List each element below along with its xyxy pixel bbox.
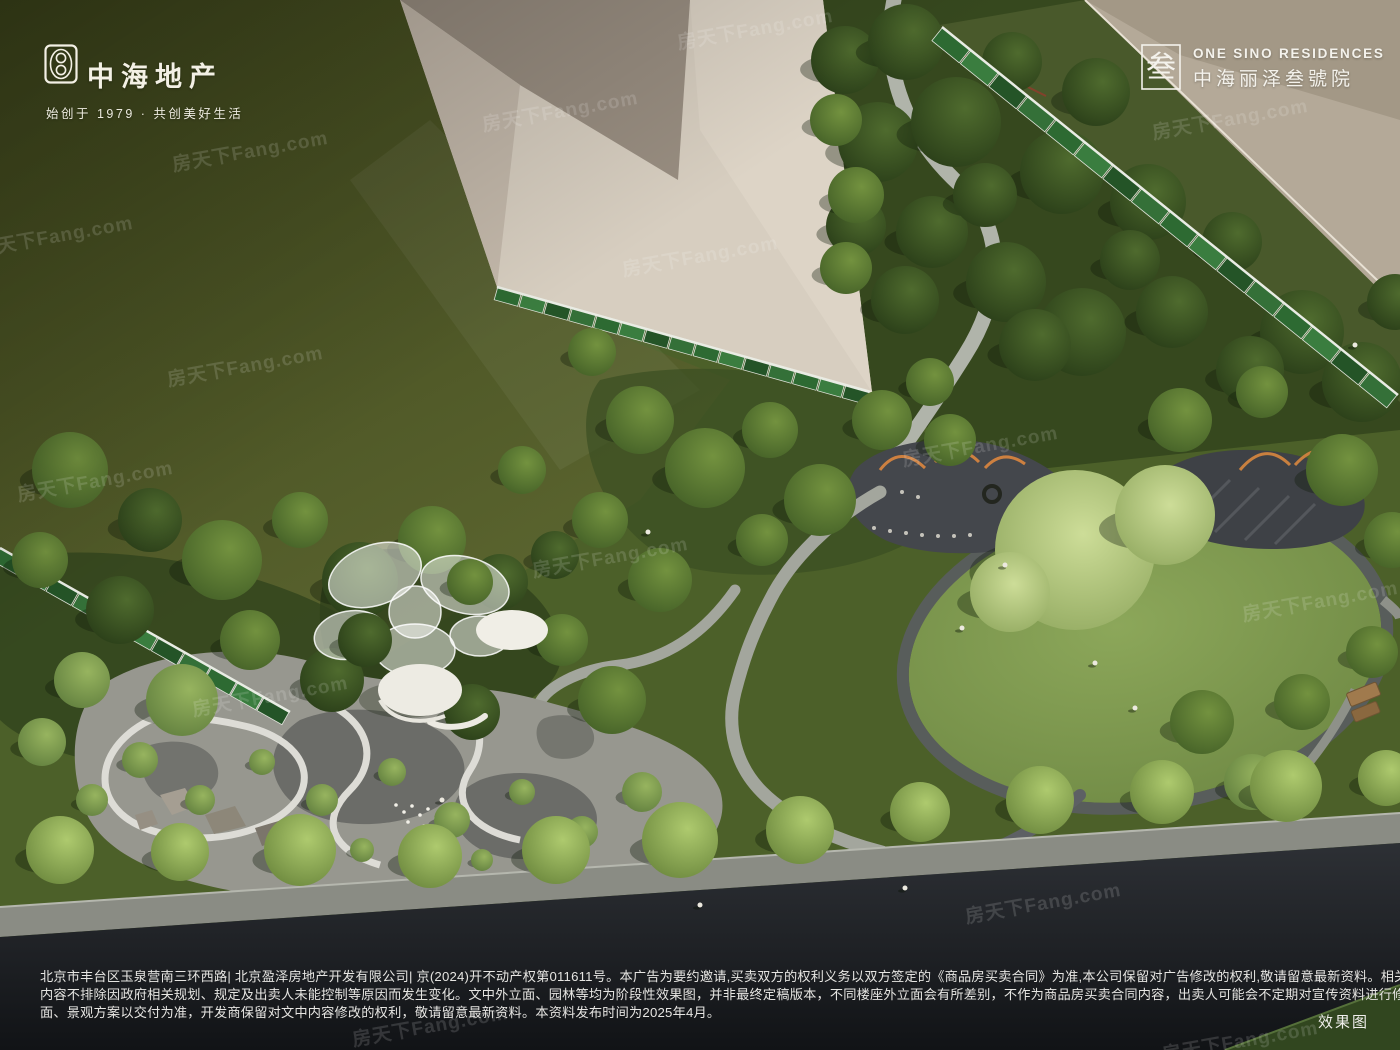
aerial-render: [0, 0, 1400, 1050]
render-type-label: 效果图: [1318, 1011, 1369, 1032]
project-logo-block: 叁 ONE SINO RESIDENCES 中海丽泽叁號院: [1141, 44, 1385, 91]
developer-name: 中海地产: [87, 64, 223, 91]
disclaimer-line: 内容不排除因政府相关规划、规定及出卖人未能控制等原因而发生变化。文中外立面、园林…: [40, 986, 1372, 1004]
developer-logo-block: 中海地产 始创于 1979 · 共创美好生活: [44, 44, 243, 122]
zhonghai-seal-icon: [44, 44, 78, 84]
project-name-cn: 中海丽泽叁號院: [1193, 64, 1385, 91]
marketing-poster: 房天下Fang.com房天下Fang.com房天下Fang.com房天下Fang…: [0, 0, 1400, 1050]
developer-tagline: 始创于 1979 · 共创美好生活: [46, 103, 243, 122]
disclaimer-line: 面、景观方案以交付为准，开发商保留对文中内容修改的权利，敬请留意最新资料。本资料…: [40, 1004, 1372, 1022]
san-seal-icon: 叁: [1141, 44, 1181, 90]
san-glyph: 叁: [1146, 50, 1176, 85]
project-name-en: ONE SINO RESIDENCES: [1193, 46, 1385, 61]
disclaimer-line: 北京市丰台区玉泉营南三环西路| 北京盈泽房地产开发有限公司| 京(2024)开不…: [40, 968, 1372, 986]
disclaimer: 北京市丰台区玉泉营南三环西路| 北京盈泽房地产开发有限公司| 京(2024)开不…: [40, 968, 1372, 1021]
vignette: [0, 0, 1400, 1050]
